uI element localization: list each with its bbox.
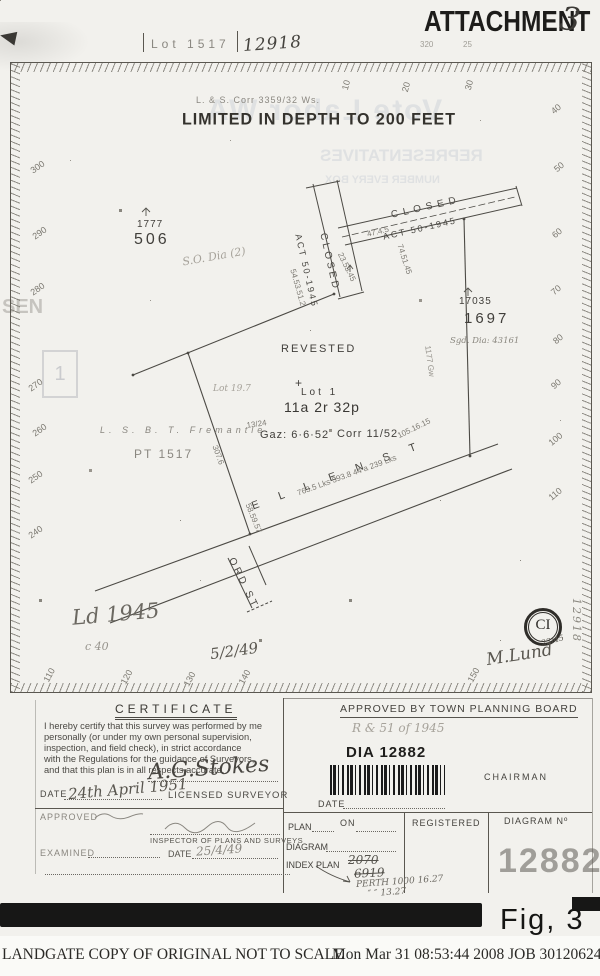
figure-label: Fig, 3 bbox=[500, 904, 585, 937]
pt-1517-label: PT 1517 bbox=[134, 447, 193, 461]
approved-label: APPROVED bbox=[40, 812, 98, 822]
signature-squiggles bbox=[95, 814, 255, 833]
leader-dots bbox=[312, 830, 334, 832]
panel-line bbox=[35, 808, 283, 809]
registered-label: REGISTERED bbox=[412, 818, 481, 828]
parcel-number: 1697 bbox=[464, 310, 509, 327]
gazettal-note: Gaz: 6·6·52 bbox=[260, 429, 329, 441]
lot-1-label: Lot 1 bbox=[301, 387, 338, 398]
scanned-survey-document: Vote Labor WA REPRESENTATIVES NUMBER EVE… bbox=[0, 0, 600, 976]
chairman-label: CHAIRMAN bbox=[484, 772, 548, 782]
signature-line bbox=[150, 833, 280, 835]
town-planning-heading: APPROVED BY TOWN PLANNING BOARD bbox=[340, 703, 578, 718]
scan-black-band bbox=[0, 903, 482, 927]
dia-number-stamp: DIA 12882 bbox=[346, 744, 426, 761]
panel-line bbox=[283, 812, 592, 813]
diagram-no-label: DIAGRAM Nº bbox=[504, 816, 568, 826]
on-label: ON bbox=[340, 818, 356, 828]
scan-timestamp: Mon Mar 31 08:53:44 2008 JOB 30120624 bbox=[332, 946, 600, 964]
fremantle-note: L. S. B. T. Fremantle bbox=[100, 425, 266, 435]
panel-divider bbox=[488, 812, 489, 893]
date-label: DATE bbox=[168, 849, 191, 859]
margin-number-vertical: 12918 bbox=[570, 598, 583, 643]
faded-line bbox=[45, 873, 290, 875]
sgd-dia-note: Sgd. Dia: 43161 bbox=[450, 336, 519, 346]
certificate-body-line: I hereby certify that this survey was pe… bbox=[44, 721, 262, 732]
certificate-body-line: personally (or under my own personal sup… bbox=[44, 732, 252, 742]
handwritten-note: c 40 bbox=[85, 640, 109, 653]
licensed-surveyor-label: LICENSED SURVEYOR bbox=[168, 790, 288, 801]
leader-dots bbox=[356, 830, 396, 832]
certificate-body-line: inspection, and field check), in strict … bbox=[44, 743, 241, 753]
certificate-heading: CERTIFICATE bbox=[115, 702, 237, 720]
correction-note: Corr 11/52 bbox=[337, 428, 398, 440]
parcel-number: 17035 bbox=[459, 296, 492, 307]
panel-line bbox=[283, 698, 592, 699]
diagram-number-large: 12882 bbox=[498, 842, 600, 881]
landgate-disclaimer: LANDGATE COPY OF ORIGINAL NOT TO SCALE bbox=[2, 946, 344, 964]
corr-note: L. & S. Corr 3359/32 Ws. bbox=[196, 95, 320, 105]
leader-dots bbox=[326, 850, 396, 852]
parcel-number: 506 bbox=[134, 231, 170, 249]
date-label: DATE bbox=[318, 799, 345, 809]
date-line bbox=[343, 807, 445, 809]
parcel-number: 1777 bbox=[137, 219, 163, 230]
barcode bbox=[330, 765, 445, 795]
diagram-label: DIAGRAM bbox=[286, 842, 328, 852]
limited-depth-stamp: LIMITED IN DEPTH TO 200 FEET bbox=[182, 111, 456, 130]
plan-label: PLAN bbox=[288, 822, 312, 832]
lot-19-7-note: Lot 19.7 bbox=[213, 384, 251, 394]
panel-line bbox=[35, 700, 36, 874]
pencil-act-note: R & 51 of 1945 bbox=[352, 721, 444, 735]
index-plan-label: INDEX PLAN bbox=[286, 860, 340, 870]
lot-area-label: 11a 2r 32p bbox=[284, 399, 360, 415]
examined-label: EXAMINED bbox=[40, 848, 95, 858]
examined-line bbox=[88, 856, 160, 858]
revested-label: REVESTED bbox=[281, 343, 356, 355]
